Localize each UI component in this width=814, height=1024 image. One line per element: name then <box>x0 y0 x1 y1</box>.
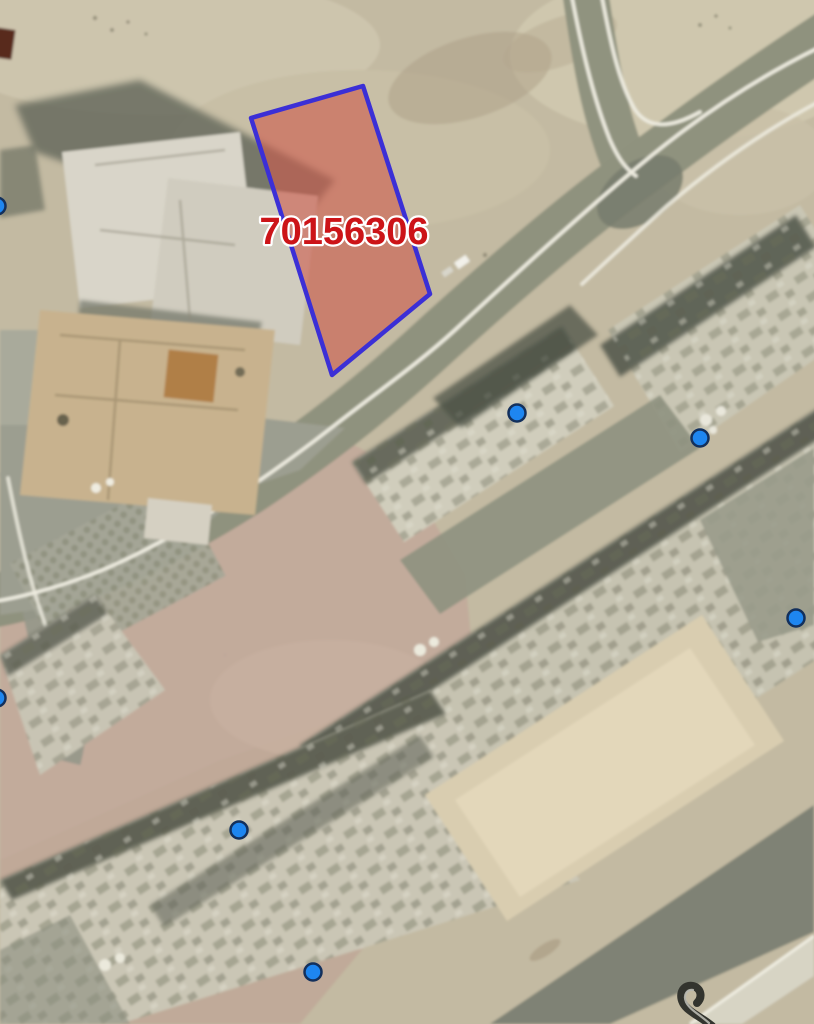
basemap <box>0 0 814 1024</box>
map-marker[interactable] <box>0 690 6 707</box>
map-marker[interactable] <box>692 430 709 447</box>
map-viewport[interactable]: 70156306 <box>0 0 814 1024</box>
building-orange-roof <box>164 350 219 403</box>
building-tan <box>20 310 275 515</box>
map-marker[interactable] <box>0 198 6 215</box>
map-marker[interactable] <box>788 610 805 627</box>
map-marker[interactable] <box>509 405 526 422</box>
map-marker[interactable] <box>231 822 248 839</box>
map-marker[interactable] <box>305 964 322 981</box>
map-canvas[interactable]: 70156306 <box>0 0 814 1024</box>
parcel-label: 70156306 <box>259 211 428 253</box>
